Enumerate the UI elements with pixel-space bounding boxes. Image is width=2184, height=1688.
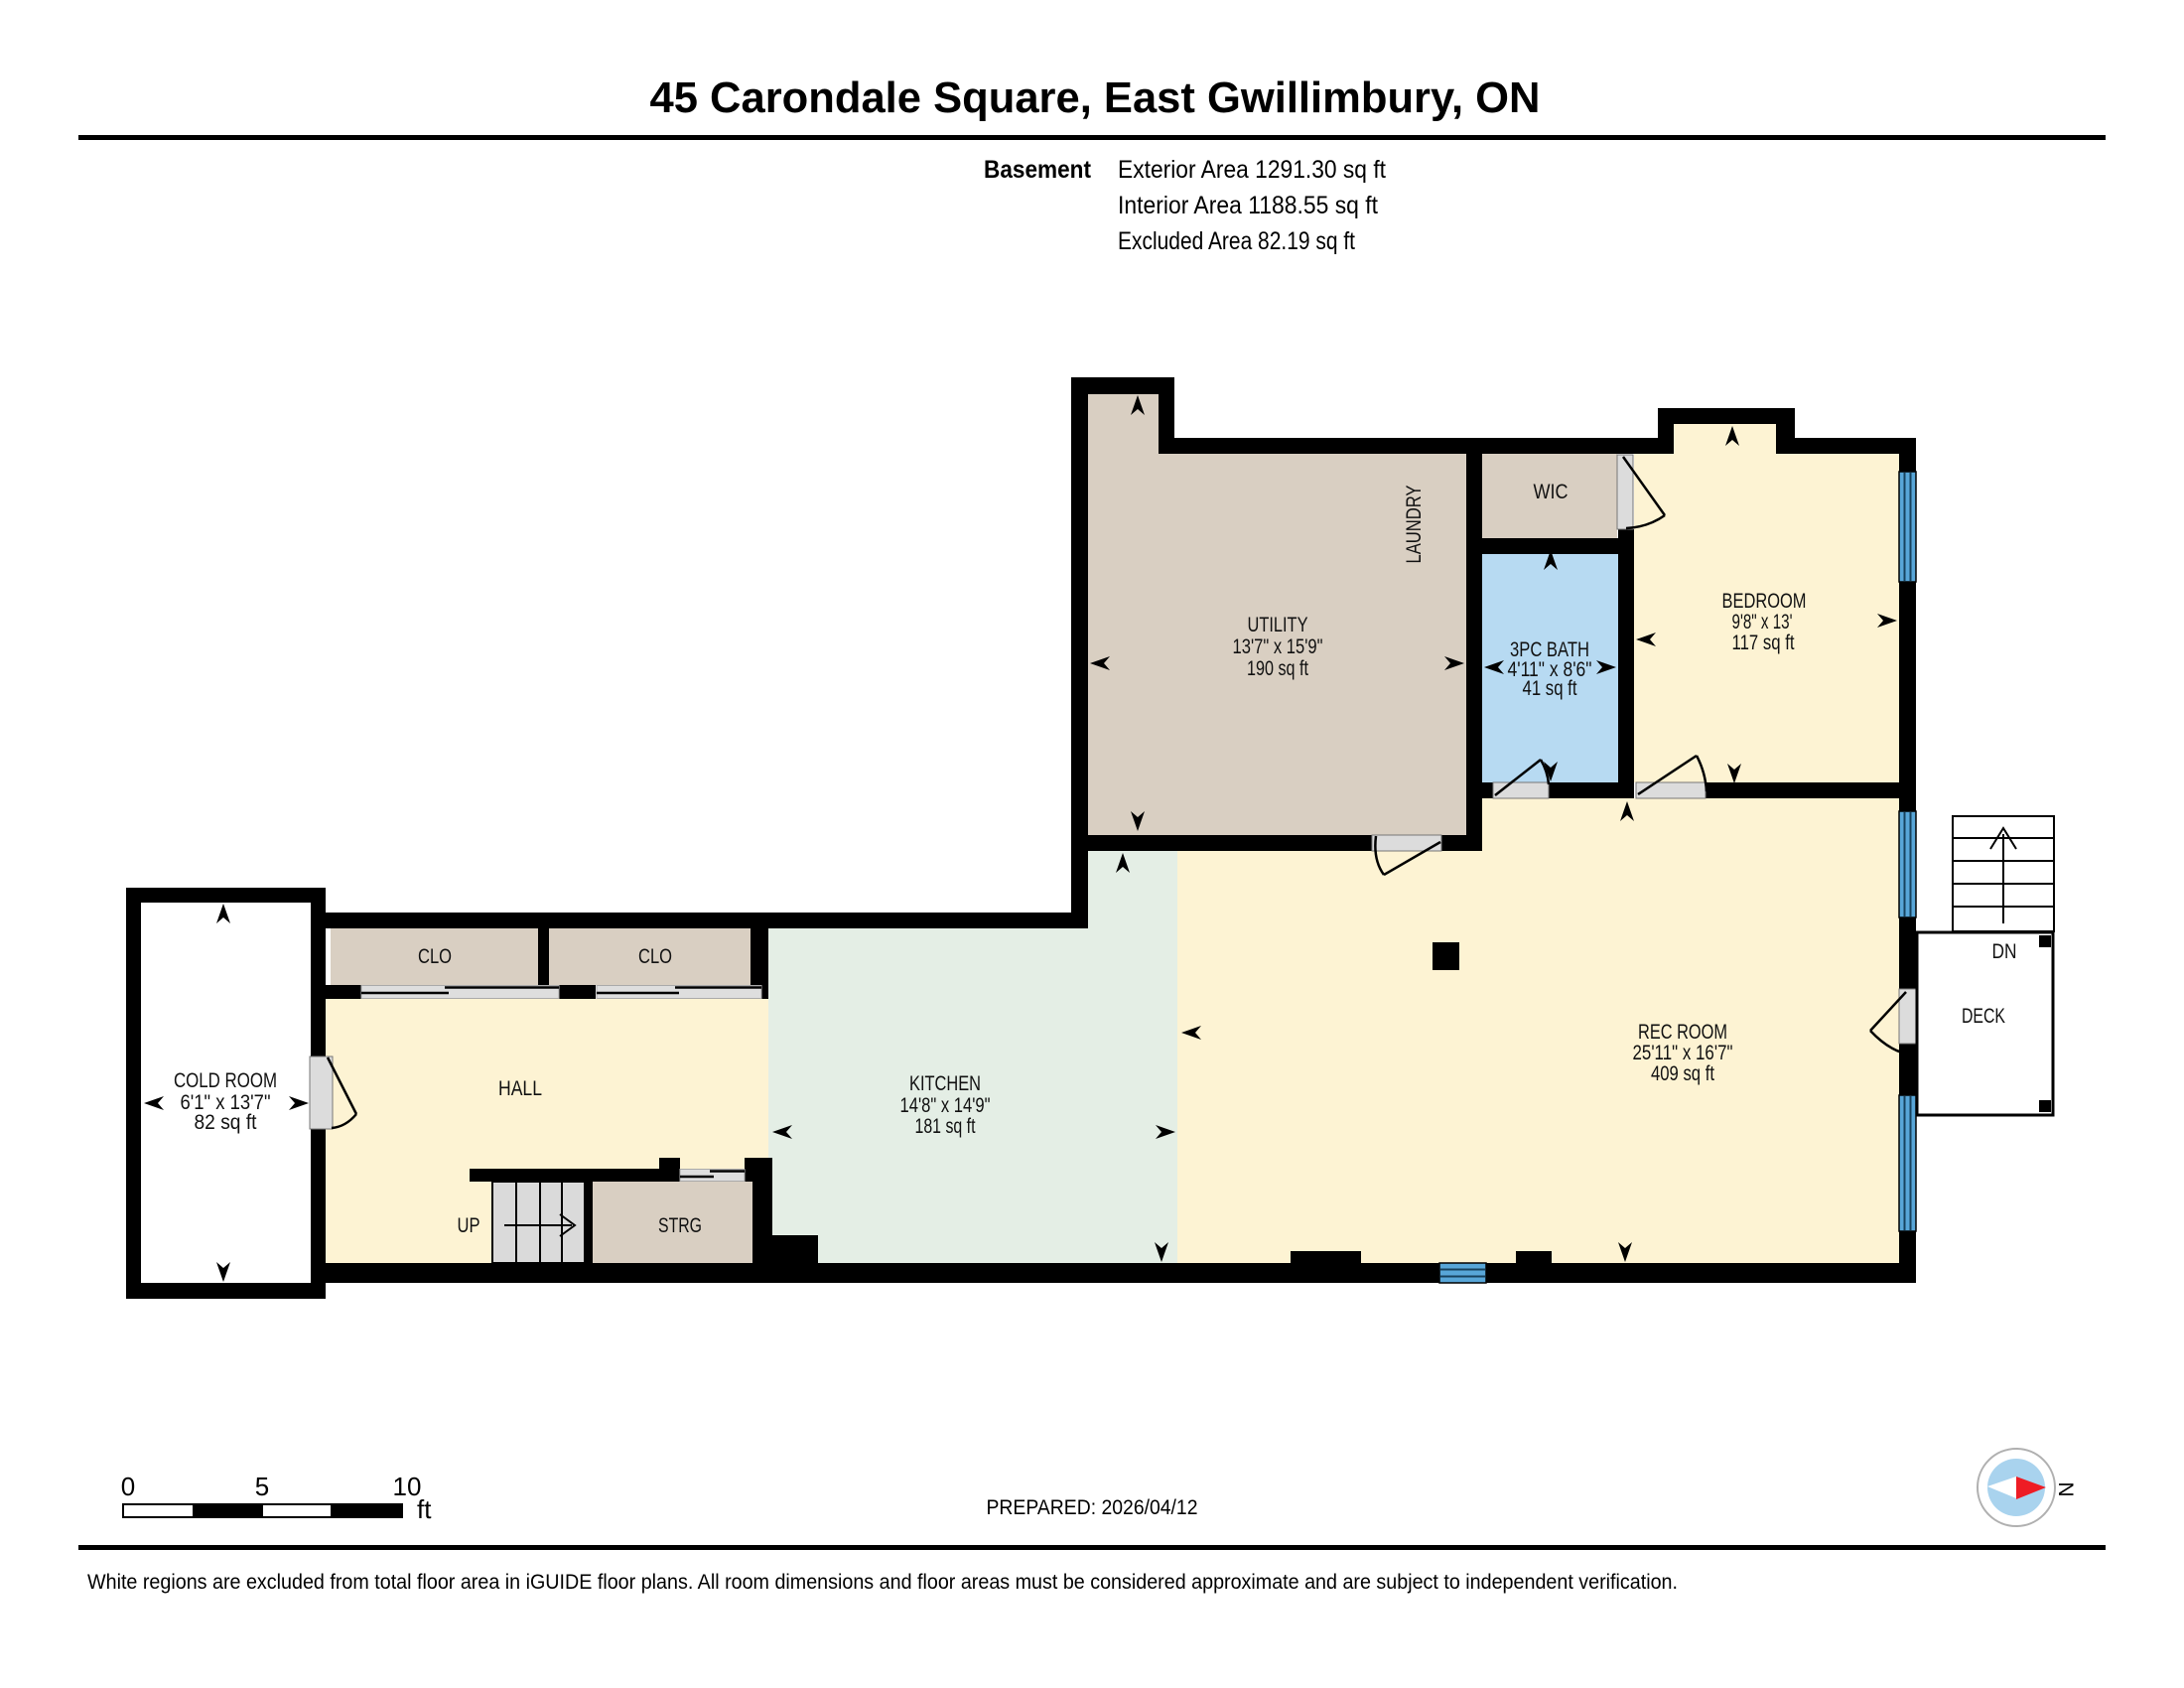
svg-text:Interior Area 1188.55 sq ft: Interior Area 1188.55 sq ft xyxy=(1118,192,1378,219)
svg-text:45 Carondale Square, East Gwil: 45 Carondale Square, East Gwillimbury, O… xyxy=(650,73,1541,122)
svg-text:5: 5 xyxy=(255,1472,269,1501)
svg-text:CLO: CLO xyxy=(418,945,452,968)
svg-text:0: 0 xyxy=(121,1472,135,1501)
svg-text:LAUNDRY: LAUNDRY xyxy=(1403,486,1426,564)
svg-text:409 sq ft: 409 sq ft xyxy=(1651,1062,1714,1085)
svg-text:190 sq ft: 190 sq ft xyxy=(1247,657,1308,680)
svg-text:UTILITY: UTILITY xyxy=(1248,614,1308,636)
svg-text:25'11" x 16'7": 25'11" x 16'7" xyxy=(1633,1042,1733,1064)
svg-text:DECK: DECK xyxy=(1962,1005,2005,1028)
svg-text:9'8" x 13': 9'8" x 13' xyxy=(1732,611,1793,633)
svg-text:14'8" x 14'9": 14'8" x 14'9" xyxy=(900,1094,991,1117)
svg-text:Exterior Area 1291.30 sq ft: Exterior Area 1291.30 sq ft xyxy=(1118,156,1386,184)
svg-text:82 sq ft: 82 sq ft xyxy=(195,1111,257,1134)
svg-text:117 sq ft: 117 sq ft xyxy=(1732,632,1795,654)
svg-text:N: N xyxy=(2054,1481,2077,1496)
svg-text:13'7" x 15'9": 13'7" x 15'9" xyxy=(1233,635,1323,658)
svg-text:HALL: HALL xyxy=(498,1077,542,1100)
svg-text:DN: DN xyxy=(1992,940,2017,963)
svg-text:PREPARED: 2026/04/12: PREPARED: 2026/04/12 xyxy=(987,1496,1198,1519)
svg-text:COLD ROOM: COLD ROOM xyxy=(174,1069,277,1092)
svg-text:REC ROOM: REC ROOM xyxy=(1638,1021,1727,1044)
svg-text:ft: ft xyxy=(417,1494,432,1524)
svg-text:UP: UP xyxy=(458,1214,480,1237)
svg-text:White regions are excluded fro: White regions are excluded from total fl… xyxy=(87,1570,1678,1594)
svg-text:WIC: WIC xyxy=(1534,481,1569,503)
svg-text:Basement: Basement xyxy=(984,156,1092,184)
svg-text:CLO: CLO xyxy=(638,945,672,968)
svg-text:BEDROOM: BEDROOM xyxy=(1722,590,1807,613)
svg-text:181 sq ft: 181 sq ft xyxy=(915,1115,976,1138)
svg-text:Excluded Area 82.19 sq ft: Excluded Area 82.19 sq ft xyxy=(1118,227,1355,255)
svg-text:STRG: STRG xyxy=(658,1214,702,1237)
svg-text:KITCHEN: KITCHEN xyxy=(909,1072,981,1095)
svg-text:41 sq ft: 41 sq ft xyxy=(1523,677,1577,700)
